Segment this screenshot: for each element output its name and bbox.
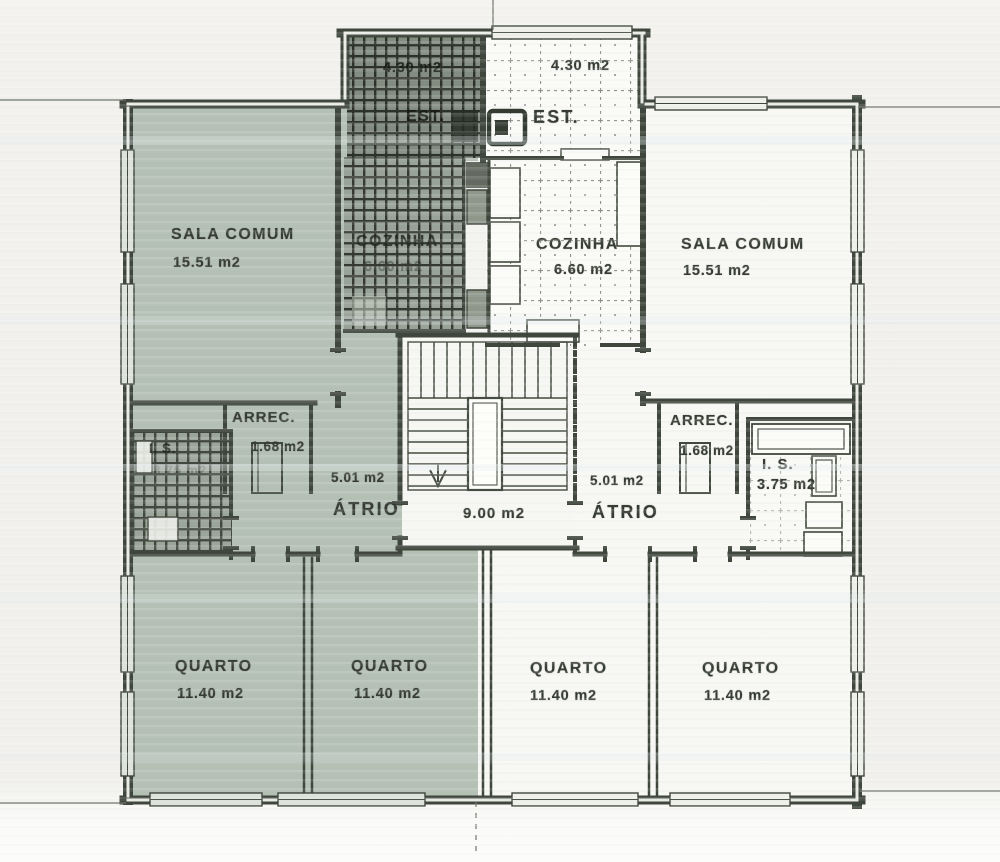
room-label-quarto-left-inner: QUARTO [351,658,428,676]
floor-plan-page: 4.30 m2 EST. 4.30 m2 EST. SALA COMUM 15.… [0,0,1000,862]
room-label-quarto-right-outer: QUARTO [702,660,779,678]
room-label-is-left: I. S. [149,441,176,456]
room-area-quarto-left-inner: 11.40 m2 [354,686,421,702]
room-labels: 4.30 m2 EST. 4.30 m2 EST. SALA COMUM 15.… [0,0,1000,862]
room-label-cozinha-left: COZINHA [356,233,439,251]
room-area-arrec-right: 1.68 m2 [680,443,734,458]
room-area-is-right: 3.75 m2 [757,477,816,493]
room-label-sala-left: SALA COMUM [171,226,295,244]
room-label-arrec-left: ARREC. [232,409,296,426]
room-area-quarto-right-outer: 11.40 m2 [704,688,771,704]
room-area-atrio-left: 5.01 m2 [331,470,385,485]
room-area-quarto-right-inner: 11.40 m2 [530,688,597,704]
room-area-est-left: 4.30 m2 [383,60,442,76]
room-area-cozinha-left: 6.60 m2 [364,259,423,275]
room-area-arrec-left: 1.68 m2 [251,439,305,454]
room-label-cozinha-right: COZINHA [536,236,619,254]
room-area-atrio-right: 5.01 m2 [590,473,644,488]
room-area-sala-left: 15.51 m2 [173,255,241,271]
room-label-quarto-left-outer: QUARTO [175,658,252,676]
room-label-quarto-right-inner: QUARTO [530,660,607,678]
room-label-est-left: EST. [406,108,445,126]
room-label-arrec-right: ARREC. [670,412,734,429]
room-label-sala-right: SALA COMUM [681,236,805,254]
room-label-atrio-right: ÁTRIO [592,502,659,523]
room-area-stairwell: 9.00 m2 [463,505,525,522]
room-label-is-right: I. S. [762,456,794,473]
room-area-quarto-left-outer: 11.40 m2 [177,686,244,702]
room-label-est-right: EST. [533,107,580,128]
room-area-sala-right: 15.51 m2 [683,263,751,279]
room-area-is-left: 3.75 m2 [153,463,207,478]
room-area-est-right: 4.30 m2 [551,58,610,74]
room-label-atrio-left: ÁTRIO [333,499,400,520]
room-area-cozinha-right: 6.60 m2 [554,262,613,278]
